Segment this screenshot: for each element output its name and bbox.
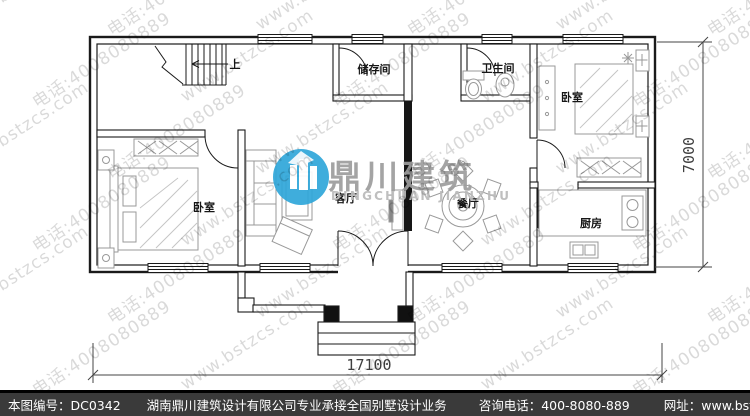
window-icon xyxy=(568,264,618,273)
entrance-porch xyxy=(238,272,415,355)
wardrobe-left-bedroom xyxy=(134,139,198,156)
sofa xyxy=(246,150,276,236)
nightstand xyxy=(636,116,649,137)
window-icon xyxy=(442,264,502,273)
porch-column xyxy=(398,306,413,322)
stairs-up-label: 上 xyxy=(230,57,241,71)
plant-icon xyxy=(622,52,634,64)
company-slogan: 湖南鼎川建筑设计有限公司专业承接全国别墅设计业务 xyxy=(147,395,447,414)
logo: 鼎川建筑 DINGCHUAN JIANZHU xyxy=(273,149,511,205)
dining-chair xyxy=(483,215,501,233)
porch-column xyxy=(324,306,339,322)
washbasin-icon xyxy=(496,73,514,97)
armchair xyxy=(272,217,312,255)
bed-right-bedroom xyxy=(575,64,633,134)
room-label-bedroom-right: 卧室 xyxy=(561,90,583,104)
window-icon xyxy=(563,35,623,44)
dining-chair xyxy=(425,215,443,233)
entrance-steps xyxy=(318,322,415,355)
footer-bar: 本图编号：DC0342 湖南鼎川建筑设计有限公司专业承接全国别墅设计业务 咨询电… xyxy=(0,390,750,416)
door-arc-bedroom-right xyxy=(537,140,565,168)
dining-chair xyxy=(453,231,473,251)
stair-break-line xyxy=(155,46,183,84)
website-url: 网址：www.bstzcs.com xyxy=(664,395,750,414)
dimension-height-text: 7000 xyxy=(680,137,698,173)
window-icon xyxy=(260,264,310,273)
floor-plan-page: 17100 7000 储存间 卫生间 卧室 卧室 客厅 餐厅 厨房 上 鼎川建筑… xyxy=(0,0,750,416)
dimension-width-text: 17100 xyxy=(346,356,391,374)
room-label-bathroom: 卫生间 xyxy=(482,61,515,75)
entrance-double-door xyxy=(338,231,408,266)
window-icon xyxy=(352,35,383,44)
floor-plan-drawing: 17100 7000 储存间 卫生间 卧室 卧室 客厅 餐厅 厨房 上 鼎川建筑… xyxy=(0,0,750,390)
staircase xyxy=(155,44,228,85)
stove xyxy=(622,196,643,230)
sink xyxy=(570,242,598,258)
room-label-bedroom-left: 卧室 xyxy=(193,200,215,214)
window-icon xyxy=(258,35,312,44)
dresser xyxy=(539,66,555,130)
room-label-kitchen: 厨房 xyxy=(580,216,602,230)
nightstand xyxy=(636,50,649,71)
nightstand xyxy=(98,248,114,268)
consult-phone: 咨询电话：400-8080-889 xyxy=(479,395,630,414)
logo-en-text: DINGCHUAN JIANZHU xyxy=(331,189,511,203)
drawing-number: 本图编号：DC0342 xyxy=(8,395,121,414)
nightstand xyxy=(98,150,114,170)
window-icon xyxy=(148,264,208,273)
window-icon xyxy=(482,35,512,44)
wardrobe-right-bedroom xyxy=(577,158,641,177)
door-arc-bedroom-left xyxy=(205,135,238,168)
room-label-storage: 储存间 xyxy=(358,62,391,76)
bed-left-bedroom xyxy=(110,166,198,252)
